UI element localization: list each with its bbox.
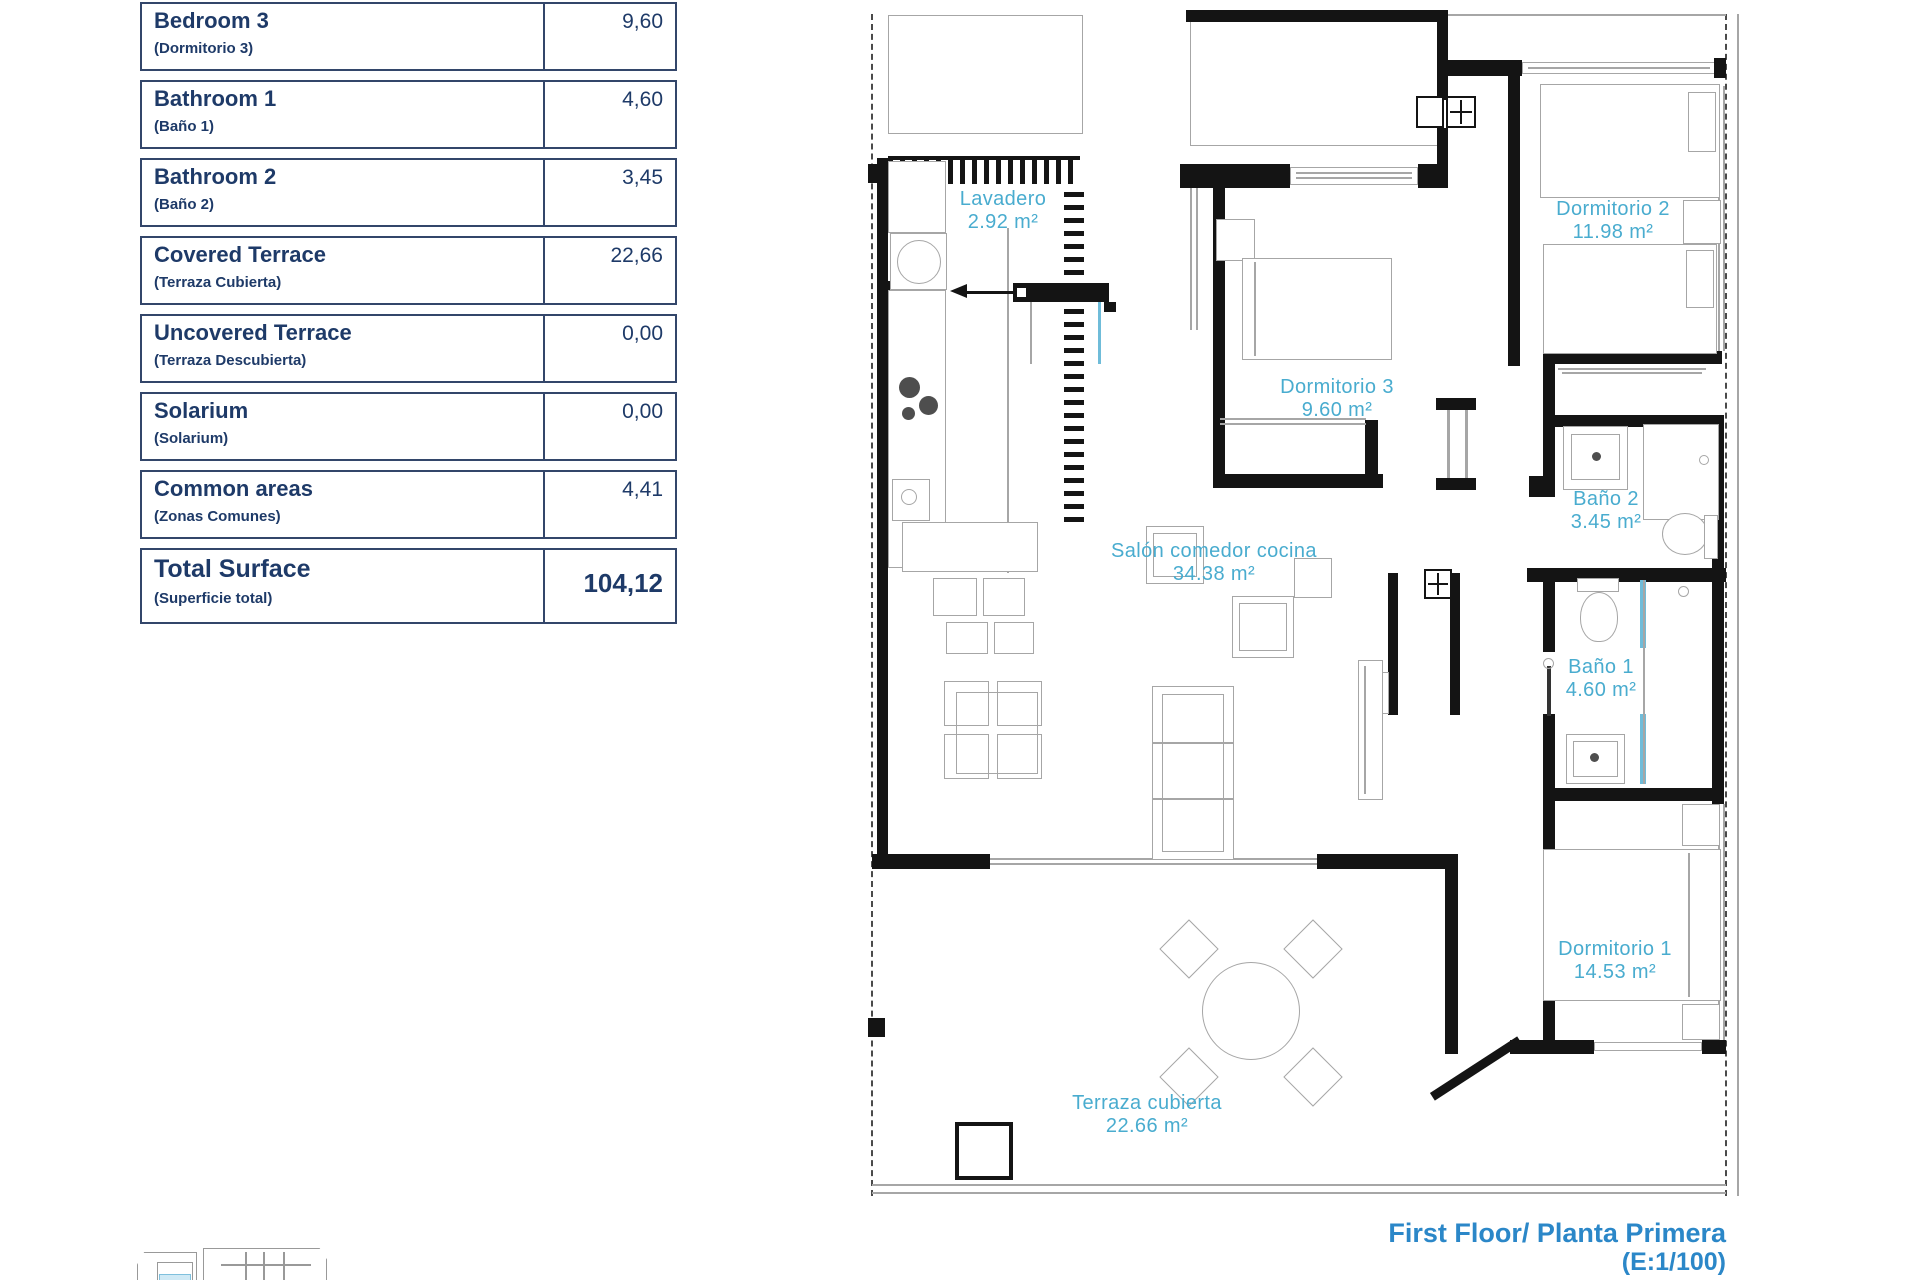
- room-area: 2.92 m²: [903, 211, 1103, 234]
- row-value: 9,60: [543, 4, 675, 69]
- total-label-en: Total Surface: [154, 554, 543, 584]
- tv-line: [1364, 666, 1366, 794]
- shaft-cross-symbol: [1446, 96, 1476, 128]
- table-row: Covered Terrace(Terraza Cubierta) 22,66: [140, 236, 677, 305]
- stool: [994, 622, 1034, 654]
- row-label-es: (Baño 2): [154, 196, 543, 213]
- window-glass-line: [1723, 804, 1725, 1042]
- window-glass-line: [1296, 177, 1412, 179]
- wall-segment: [1714, 58, 1726, 78]
- kitchen-island: [902, 522, 1038, 572]
- room-label-bano-2: Baño 23.45 m²: [1526, 488, 1686, 534]
- wall-segment: [1702, 1040, 1726, 1054]
- table-row: Bathroom 2(Baño 2) 3,45: [140, 158, 677, 227]
- door-opening-line: [1465, 410, 1468, 478]
- wall-segment: [1447, 60, 1522, 76]
- terrace-chair: [1159, 919, 1218, 978]
- diagonal-wall: [1430, 1036, 1522, 1100]
- planter-box: [955, 1122, 1013, 1180]
- stove-burner: [902, 407, 915, 420]
- door-opening-cap: [1436, 398, 1476, 410]
- shaft-cross-symbol: [1424, 569, 1452, 599]
- room-area: 4.60 m²: [1521, 679, 1681, 702]
- plot-edge-line: [1737, 14, 1739, 1196]
- building-location-icon: [135, 1240, 345, 1280]
- table-row: Bedroom 3(Dormitorio 3) 9,60: [140, 2, 677, 71]
- row-value: 3,45: [543, 160, 675, 225]
- row-label-en: Bathroom 1: [154, 86, 543, 112]
- room-name: Salón comedor cocina: [1064, 540, 1364, 563]
- table-row: Uncovered Terrace(Terraza Descubierta) 0…: [140, 314, 677, 383]
- round-table: [1202, 962, 1300, 1060]
- window: [1594, 1042, 1702, 1051]
- wall-segment: [1213, 474, 1383, 488]
- wall-segment: [1527, 568, 1726, 582]
- row-label-es: (Terraza Descubierta): [154, 352, 543, 369]
- row-value: 4,60: [543, 82, 675, 147]
- window-glass-line: [1296, 172, 1412, 174]
- stool: [933, 578, 977, 616]
- property-line-right: [1725, 14, 1727, 1196]
- sink-drain: [1590, 753, 1599, 762]
- row-label-es: (Baño 1): [154, 118, 543, 135]
- highlighted-unit: [159, 1274, 191, 1280]
- room-name: Dormitorio 3: [1237, 376, 1437, 399]
- room-area: 11.98 m²: [1513, 221, 1713, 244]
- table-row: Solarium(Solarium) 0,00: [140, 392, 677, 461]
- row-label-en: Solarium: [154, 398, 543, 424]
- room-label-dormitorio-3: Dormitorio 39.60 m²: [1237, 376, 1437, 422]
- sliding-door-line: [990, 863, 1317, 865]
- wall-segment: [1437, 128, 1448, 168]
- row-value: 4,41: [543, 472, 675, 537]
- nightstand: [1216, 219, 1255, 261]
- armchair-seat: [1239, 603, 1287, 651]
- row-label-es: (Dormitorio 3): [154, 40, 543, 57]
- wall-segment: [868, 1018, 885, 1037]
- wall-segment: [872, 854, 990, 869]
- wall-segment: [1365, 420, 1378, 488]
- grid-line: [283, 1252, 285, 1280]
- table-row: Bathroom 1(Baño 1) 4,60: [140, 80, 677, 149]
- window-glass-line: [1528, 67, 1710, 69]
- room-name: Baño 2: [1526, 488, 1686, 511]
- room-area: 34.38 m²: [1064, 563, 1364, 586]
- wall-segment: [1543, 788, 1722, 801]
- terrace-edge-line: [872, 1184, 1726, 1186]
- pillow: [1686, 250, 1714, 308]
- wall-segment: [877, 158, 888, 858]
- pillow: [1688, 92, 1716, 152]
- glass-panel: [1098, 302, 1101, 364]
- toilet-tank: [1704, 515, 1718, 559]
- table-row: Common areas(Zonas Comunes) 4,41: [140, 470, 677, 539]
- total-value: 104,12: [543, 550, 675, 622]
- pillow-line: [1254, 262, 1256, 356]
- wall-segment: [1510, 1040, 1594, 1054]
- room-area: 3.45 m²: [1526, 511, 1686, 534]
- room-name: Terraza cubierta: [1047, 1092, 1247, 1115]
- entry-arrow-icon: [950, 284, 967, 298]
- toilet: [1580, 592, 1618, 642]
- room-area: 14.53 m²: [1515, 961, 1715, 984]
- terrace-chair: [1283, 1047, 1342, 1106]
- stool: [946, 622, 988, 654]
- wall-segment: [1180, 164, 1290, 188]
- room-label-dormitorio-2: Dormitorio 211.98 m²: [1513, 198, 1713, 244]
- window-glass-line: [1723, 86, 1725, 351]
- drain: [1678, 586, 1689, 597]
- grid-line: [263, 1252, 265, 1280]
- entry-door-leaf: [1013, 283, 1109, 302]
- washing-machine-drum: [897, 240, 941, 284]
- louver-strip: [1064, 184, 1084, 522]
- row-value: 0,00: [543, 394, 675, 459]
- room-label-terraza: Terraza cubierta22.66 m²: [1047, 1092, 1247, 1138]
- door-swing-line: [1030, 302, 1032, 364]
- plan-scale-text: (E:1/100): [1206, 1248, 1726, 1276]
- room-name: Baño 1: [1521, 656, 1681, 679]
- wall-segment: [1317, 854, 1458, 869]
- window-glass-line: [1190, 188, 1192, 330]
- room-area: 22.66 m²: [1047, 1115, 1247, 1138]
- wall-segment: [1543, 568, 1555, 652]
- row-label-en: Common areas: [154, 476, 543, 502]
- room-label-bano-1: Baño 14.60 m²: [1521, 656, 1681, 702]
- row-label-en: Bathroom 2: [154, 164, 543, 190]
- wall-segment: [1418, 164, 1448, 188]
- row-value: 22,66: [543, 238, 675, 303]
- wall-segment: [1186, 10, 1448, 22]
- closet-line: [1562, 372, 1702, 374]
- entry-door-handle: [1017, 288, 1026, 297]
- roof-outline: [888, 15, 1083, 134]
- table-row-total: Total Surface(Superficie total) 104,12: [140, 548, 677, 624]
- wall-segment: [1104, 302, 1116, 312]
- window: [1290, 167, 1418, 185]
- total-label-es: (Superficie total): [154, 590, 543, 607]
- tv-console: [1358, 660, 1383, 800]
- row-value: 0,00: [543, 316, 675, 381]
- stove-burner: [899, 377, 920, 398]
- shower-drain: [1699, 455, 1709, 465]
- row-label-en: Bedroom 3: [154, 8, 543, 34]
- terrace-chair: [1283, 919, 1342, 978]
- surface-table: Bedroom 3(Dormitorio 3) 9,60 Bathroom 1(…: [140, 2, 677, 633]
- shaft-box: [1416, 96, 1444, 128]
- bed: [1242, 258, 1392, 360]
- door-opening-cap: [1436, 478, 1476, 490]
- room-area: 9.60 m²: [1237, 399, 1437, 422]
- roof-outline: [1190, 14, 1440, 146]
- grid-line: [221, 1264, 311, 1266]
- grid-line: [245, 1252, 247, 1280]
- room-name: Dormitorio 1: [1515, 938, 1715, 961]
- toilet-tank: [1577, 578, 1619, 592]
- plan-title-text: First Floor/ Planta Primera: [1206, 1218, 1726, 1248]
- nightstand: [1682, 804, 1720, 846]
- row-label-es: (Zonas Comunes): [154, 508, 543, 525]
- row-label-en: Covered Terrace: [154, 242, 543, 268]
- row-label-es: (Terraza Cubierta): [154, 274, 543, 291]
- room-label-dormitorio-1: Dormitorio 114.53 m²: [1515, 938, 1715, 984]
- sink-drain: [901, 489, 917, 505]
- stool: [983, 578, 1025, 616]
- plan-title: First Floor/ Planta Primera (E:1/100): [1206, 1218, 1726, 1276]
- entry-arrow-line: [966, 291, 1013, 294]
- row-label-en: Uncovered Terrace: [154, 320, 543, 346]
- wall-segment: [1388, 573, 1398, 715]
- wall-segment: [1437, 10, 1448, 100]
- sink-drain: [1592, 452, 1601, 461]
- room-label-lavadero: Lavadero2.92 m²: [903, 188, 1103, 234]
- roof-outline: [1447, 14, 1726, 16]
- row-label-es: (Solarium): [154, 430, 543, 447]
- room-name: Dormitorio 2: [1513, 198, 1713, 221]
- dining-table: [956, 692, 1038, 774]
- door-opening-line: [1447, 410, 1450, 478]
- window-glass-line: [1196, 188, 1198, 330]
- room-label-salon: Salón comedor cocina34.38 m²: [1064, 540, 1364, 586]
- terrace-edge-line: [872, 1192, 1726, 1194]
- wall-segment: [1445, 854, 1458, 1054]
- closet-line: [1558, 368, 1706, 370]
- floor-plan-sheet: Bedroom 3(Dormitorio 3) 9,60 Bathroom 1(…: [0, 0, 1920, 1280]
- wardrobe-line: [1220, 423, 1366, 425]
- nightstand: [1682, 1004, 1720, 1040]
- stove-burner: [919, 396, 938, 415]
- room-name: Lavadero: [903, 188, 1103, 211]
- sofa-seat-outline: [1162, 694, 1224, 852]
